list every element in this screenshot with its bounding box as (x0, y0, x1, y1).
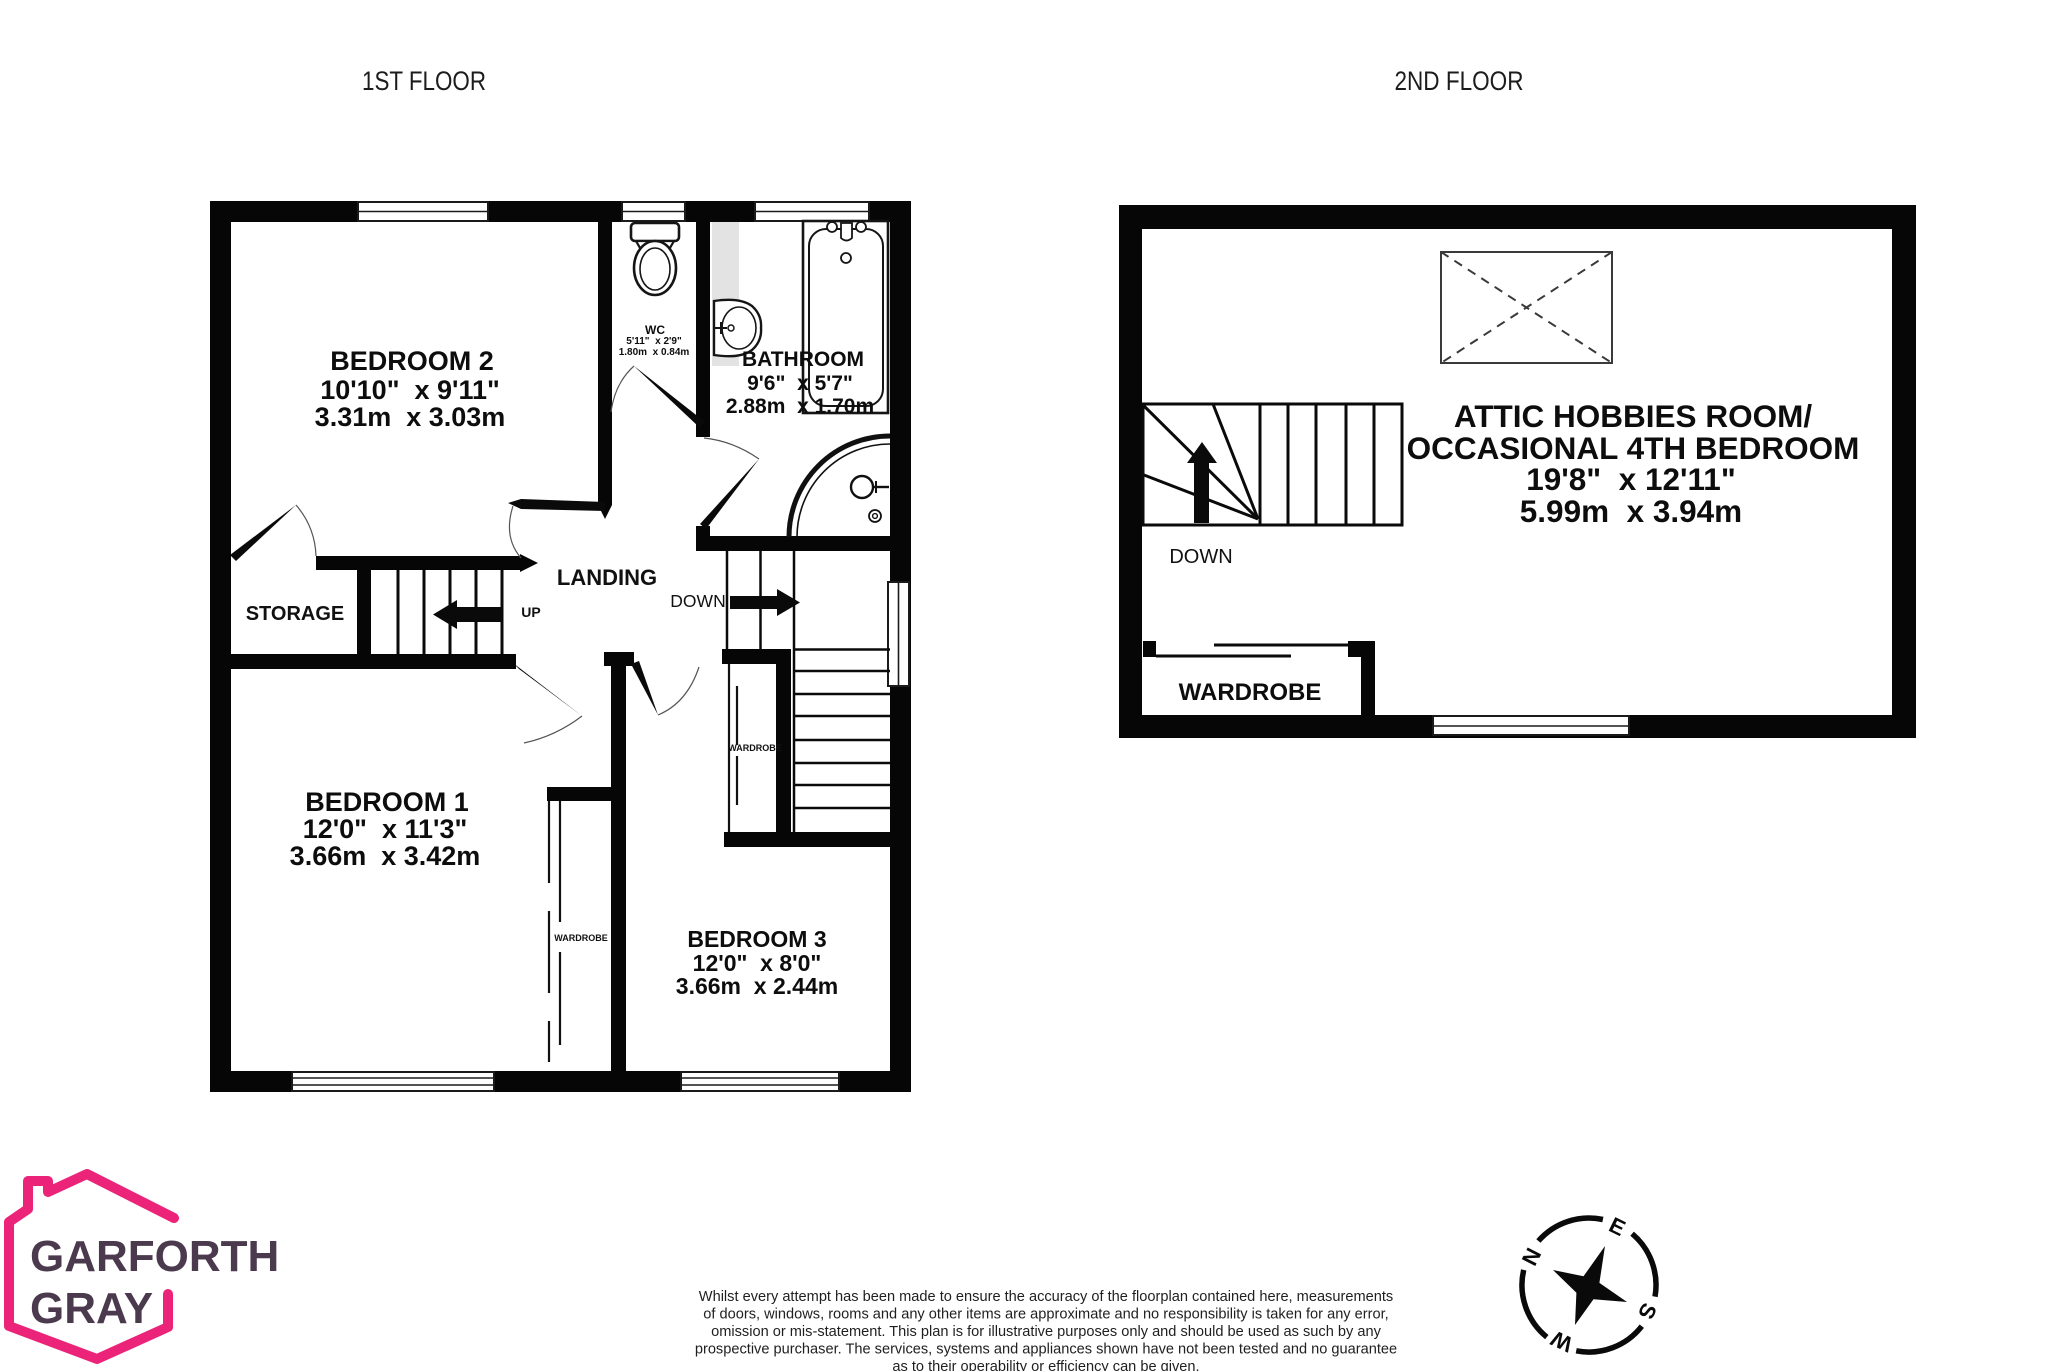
svg-text:Whilst every attempt has been: Whilst every attempt has been made to en… (699, 1289, 1393, 1305)
svg-text:WARDROBE: WARDROBE (1179, 679, 1322, 706)
svg-text:3.66m x 3.42m: 3.66m x 3.42m (290, 841, 481, 871)
svg-text:S: S (1633, 1299, 1662, 1323)
svg-text:19'8" x 12'11": 19'8" x 12'11" (1526, 461, 1736, 497)
svg-text:E: E (1605, 1212, 1629, 1241)
svg-text:1ST FLOOR: 1ST FLOOR (362, 66, 486, 96)
svg-text:WC: WC (645, 323, 665, 337)
svg-text:3.66m x 2.44m: 3.66m x 2.44m (676, 973, 838, 999)
svg-text:DOWN: DOWN (1169, 546, 1232, 568)
svg-text:5'11" x 2'9": 5'11" x 2'9" (626, 336, 682, 347)
svg-text:10'10" x 9'11": 10'10" x 9'11" (320, 375, 500, 405)
svg-text:BEDROOM 2: BEDROOM 2 (330, 346, 494, 376)
svg-text:prospective purchaser. The ser: prospective purchaser. The services, sys… (695, 1342, 1397, 1358)
svg-text:WARDROBE: WARDROBE (554, 933, 608, 943)
svg-text:omission or mis-statement. Thi: omission or mis-statement. This plan is … (711, 1324, 1381, 1340)
svg-text:DOWN: DOWN (670, 591, 725, 611)
svg-text:BEDROOM 3: BEDROOM 3 (687, 926, 826, 952)
svg-text:of doors, windows, rooms and a: of doors, windows, rooms and any other i… (703, 1307, 1388, 1323)
svg-text:LANDING: LANDING (557, 565, 657, 590)
svg-text:2ND FLOOR: 2ND FLOOR (1395, 66, 1524, 96)
svg-text:ATTIC HOBBIES ROOM/: ATTIC HOBBIES ROOM/ (1454, 398, 1812, 434)
svg-text:UP: UP (521, 604, 540, 620)
svg-text:2.88m x 1.70m: 2.88m x 1.70m (726, 395, 874, 418)
svg-text:BEDROOM 1: BEDROOM 1 (305, 787, 469, 817)
svg-text:5.99m x 3.94m: 5.99m x 3.94m (1520, 493, 1742, 529)
svg-text:GARFORTH: GARFORTH (30, 1232, 279, 1281)
svg-text:1.80m x 0.84m: 1.80m x 0.84m (619, 347, 690, 358)
svg-text:GRAY: GRAY (30, 1284, 153, 1333)
svg-text:N: N (1517, 1244, 1546, 1270)
svg-text:STORAGE: STORAGE (246, 603, 345, 625)
svg-text:9'6" x 5'7": 9'6" x 5'7" (747, 372, 853, 395)
svg-text:3.31m x 3.03m: 3.31m x 3.03m (315, 402, 506, 432)
svg-text:BATHROOM: BATHROOM (742, 348, 864, 371)
svg-text:WARDROBE: WARDROBE (728, 743, 782, 753)
svg-text:as to their operability or eff: as to their operability or efficiency ca… (892, 1359, 1199, 1371)
svg-text:12'0" x 11'3": 12'0" x 11'3" (303, 814, 468, 844)
svg-text:W: W (1547, 1326, 1577, 1358)
